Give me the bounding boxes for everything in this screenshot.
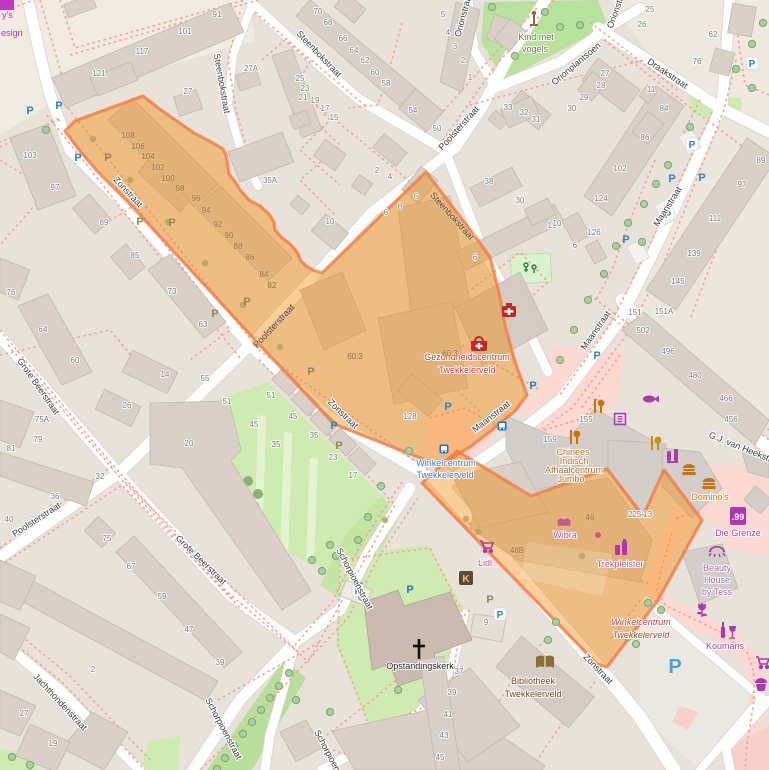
svg-text:496: 496 <box>661 347 675 356</box>
svg-text:41: 41 <box>444 710 453 719</box>
svg-text:51: 51 <box>267 391 276 400</box>
svg-text:145: 145 <box>671 277 685 286</box>
svg-text:126: 126 <box>587 228 601 237</box>
svg-text:25: 25 <box>296 74 305 83</box>
svg-text:502: 502 <box>636 326 650 335</box>
svg-text:Kind met: Kind met <box>518 32 554 42</box>
svg-text:P: P <box>243 296 250 308</box>
svg-text:84: 84 <box>660 104 669 113</box>
svg-text:Twekkelerveld: Twekkelerveld <box>613 630 671 640</box>
svg-text:97: 97 <box>51 183 60 192</box>
svg-text:45: 45 <box>250 420 259 429</box>
svg-text:139: 139 <box>687 249 701 258</box>
svg-text:P: P <box>211 308 218 320</box>
svg-text:98: 98 <box>176 184 185 193</box>
svg-text:P: P <box>104 152 111 164</box>
svg-text:19: 19 <box>311 96 320 105</box>
svg-text:House: House <box>704 575 730 585</box>
svg-text:K: K <box>462 574 470 585</box>
svg-text:P: P <box>307 366 314 378</box>
svg-text:32: 32 <box>520 108 529 117</box>
svg-text:96: 96 <box>192 194 201 203</box>
svg-text:P: P <box>55 100 62 112</box>
svg-text:68: 68 <box>324 18 333 27</box>
svg-text:79: 79 <box>34 435 43 444</box>
svg-text:47: 47 <box>185 625 194 634</box>
svg-text:97: 97 <box>738 180 747 189</box>
svg-text:32: 32 <box>96 472 105 481</box>
svg-text:81: 81 <box>7 444 16 453</box>
svg-text:.99: .99 <box>732 512 745 522</box>
svg-text:60:3: 60:3 <box>442 349 458 358</box>
svg-text:48B: 48B <box>510 546 524 555</box>
svg-text:102: 102 <box>613 164 627 173</box>
svg-text:Twekkelerveld: Twekkelerveld <box>438 365 495 375</box>
svg-text:P: P <box>749 59 756 70</box>
svg-text:111: 111 <box>709 214 722 223</box>
svg-text:21: 21 <box>299 93 308 102</box>
svg-text:31: 31 <box>532 115 541 124</box>
svg-text:10: 10 <box>326 217 335 226</box>
svg-text:55: 55 <box>201 374 210 383</box>
svg-text:25: 25 <box>646 5 655 14</box>
svg-text:60: 60 <box>371 68 380 77</box>
svg-text:76: 76 <box>693 57 702 66</box>
svg-text:106: 106 <box>131 142 145 151</box>
svg-text:60:3: 60:3 <box>347 352 363 361</box>
svg-text:92: 92 <box>214 220 223 229</box>
svg-text:6: 6 <box>414 192 419 201</box>
svg-text:27: 27 <box>20 709 29 718</box>
svg-text:P: P <box>529 380 536 392</box>
svg-text:159: 159 <box>543 435 557 444</box>
svg-text:86: 86 <box>246 253 255 262</box>
svg-text:45: 45 <box>436 753 445 762</box>
svg-text:38: 38 <box>485 177 494 186</box>
svg-text:P: P <box>622 234 629 246</box>
svg-text:90: 90 <box>225 231 234 240</box>
svg-text:117: 117 <box>136 47 149 56</box>
svg-text:Domino's: Domino's <box>691 492 729 502</box>
svg-text:88: 88 <box>234 242 243 251</box>
svg-text:esign: esign <box>1 28 23 38</box>
svg-text:P: P <box>668 173 675 185</box>
svg-text:P: P <box>136 216 143 228</box>
svg-text:y's: y's <box>2 10 13 20</box>
svg-text:6: 6 <box>473 253 478 262</box>
svg-text:155: 155 <box>579 415 593 424</box>
svg-text:3: 3 <box>453 42 458 51</box>
svg-text:466: 466 <box>719 394 733 403</box>
svg-text:P: P <box>689 140 696 151</box>
svg-text:Bibliotheek: Bibliotheek <box>511 676 556 686</box>
svg-text:108: 108 <box>121 131 135 140</box>
svg-text:2: 2 <box>375 166 380 175</box>
svg-text:51: 51 <box>223 397 232 406</box>
svg-text:59: 59 <box>158 592 167 601</box>
svg-text:P: P <box>74 152 81 164</box>
svg-text:P: P <box>497 610 504 621</box>
svg-text:94: 94 <box>202 206 211 215</box>
svg-text:91: 91 <box>213 10 222 19</box>
svg-text:151: 151 <box>628 308 642 317</box>
svg-text:67: 67 <box>127 562 136 571</box>
svg-text:60: 60 <box>71 356 80 365</box>
svg-text:19: 19 <box>49 739 58 748</box>
svg-text:70: 70 <box>314 7 323 16</box>
svg-text:P: P <box>330 420 337 432</box>
svg-text:Trekpleister: Trekpleister <box>597 559 644 569</box>
svg-text:Winkelcentrum: Winkelcentrum <box>416 458 476 468</box>
svg-text:45: 45 <box>289 412 298 421</box>
svg-text:54: 54 <box>409 106 418 115</box>
svg-text:Gezondheidscentrum: Gezondheidscentrum <box>424 352 510 362</box>
svg-text:2: 2 <box>91 665 96 674</box>
svg-text:26: 26 <box>638 20 647 29</box>
svg-text:11: 11 <box>647 85 656 94</box>
svg-text:62: 62 <box>709 30 718 39</box>
svg-text:vogels: vogels <box>522 44 549 54</box>
svg-text:17: 17 <box>349 471 358 480</box>
svg-text:14: 14 <box>161 370 170 379</box>
svg-text:Beauty: Beauty <box>703 563 732 573</box>
svg-text:480: 480 <box>688 371 702 380</box>
svg-text:82: 82 <box>268 281 277 290</box>
svg-text:27: 27 <box>601 69 610 78</box>
svg-text:85: 85 <box>131 251 140 260</box>
svg-text:33: 33 <box>504 103 513 112</box>
svg-text:30: 30 <box>568 104 577 113</box>
svg-text:20: 20 <box>185 439 194 448</box>
svg-text:9: 9 <box>484 618 489 627</box>
svg-text:89: 89 <box>757 156 766 165</box>
svg-text:102: 102 <box>151 163 165 172</box>
svg-text:27A: 27A <box>244 64 259 73</box>
svg-text:30: 30 <box>516 196 525 205</box>
svg-text:4: 4 <box>446 28 451 37</box>
svg-text:73: 73 <box>168 287 177 296</box>
svg-text:P: P <box>486 594 493 606</box>
svg-text:63: 63 <box>199 320 208 329</box>
svg-text:28: 28 <box>597 81 606 90</box>
svg-text:46: 46 <box>586 513 595 522</box>
svg-text:75: 75 <box>103 534 112 543</box>
svg-text:P: P <box>26 105 33 117</box>
svg-text:P: P <box>698 172 705 184</box>
svg-text:4: 4 <box>388 172 393 181</box>
svg-text:2: 2 <box>461 56 466 65</box>
svg-text:75A: 75A <box>35 415 50 424</box>
svg-text:17: 17 <box>321 104 330 113</box>
svg-text:40: 40 <box>5 515 14 524</box>
svg-text:104: 104 <box>141 152 155 161</box>
svg-text:121: 121 <box>92 69 106 78</box>
svg-text:10: 10 <box>553 219 562 228</box>
svg-text:103: 103 <box>23 151 37 160</box>
svg-text:Opstandingskerk: Opstandingskerk <box>386 661 454 671</box>
svg-text:50: 50 <box>433 124 442 133</box>
svg-text:P: P <box>335 440 342 452</box>
svg-text:35: 35 <box>310 431 319 440</box>
svg-text:Koumans: Koumans <box>706 641 745 651</box>
svg-text:by Tess: by Tess <box>702 587 733 597</box>
svg-text:101: 101 <box>178 27 192 36</box>
svg-text:62: 62 <box>361 56 370 65</box>
svg-text:Jumbo: Jumbo <box>557 474 584 484</box>
svg-text:Winkelcentrum: Winkelcentrum <box>611 617 671 627</box>
svg-text:Die Grenze: Die Grenze <box>715 528 761 538</box>
svg-text:P: P <box>406 584 413 596</box>
svg-text:225:13: 225:13 <box>628 510 653 519</box>
svg-text:66: 66 <box>339 34 348 43</box>
svg-text:39: 39 <box>216 658 225 667</box>
svg-text:23: 23 <box>301 84 310 93</box>
svg-text:128: 128 <box>403 412 417 421</box>
svg-text:Lidl: Lidl <box>478 558 492 568</box>
svg-text:Twekkelerveld: Twekkelerveld <box>504 689 561 699</box>
svg-text:6: 6 <box>384 208 389 217</box>
svg-text:100: 100 <box>161 174 175 183</box>
svg-text:64: 64 <box>39 325 48 334</box>
svg-text:84: 84 <box>260 270 269 279</box>
svg-text:26: 26 <box>123 401 132 410</box>
svg-text:124: 124 <box>594 194 608 203</box>
svg-text:64: 64 <box>350 46 359 55</box>
svg-text:6: 6 <box>573 241 578 250</box>
svg-text:86: 86 <box>641 133 650 142</box>
svg-text:58: 58 <box>382 79 391 88</box>
svg-text:8: 8 <box>398 202 403 211</box>
svg-text:151A: 151A <box>655 307 674 316</box>
svg-text:37: 37 <box>455 667 464 676</box>
svg-text:P: P <box>593 350 600 362</box>
svg-text:89: 89 <box>100 218 109 227</box>
svg-text:35A: 35A <box>263 176 278 185</box>
svg-text:P: P <box>668 656 681 678</box>
svg-text:39: 39 <box>448 688 457 697</box>
svg-text:27: 27 <box>184 87 193 96</box>
svg-text:23: 23 <box>329 453 338 462</box>
svg-text:76: 76 <box>7 288 16 297</box>
svg-text:P: P <box>168 217 175 229</box>
svg-text:Twekkelerveld: Twekkelerveld <box>416 470 473 480</box>
svg-text:43: 43 <box>440 731 449 740</box>
svg-text:15: 15 <box>330 113 339 122</box>
svg-text:36: 36 <box>51 492 60 501</box>
svg-text:Wibra: Wibra <box>553 530 577 540</box>
svg-text:456: 456 <box>724 415 738 424</box>
svg-text:1: 1 <box>468 73 473 82</box>
svg-text:5: 5 <box>441 10 446 19</box>
svg-text:29: 29 <box>580 93 589 102</box>
svg-text:35: 35 <box>272 440 281 449</box>
svg-text:P: P <box>444 401 451 413</box>
